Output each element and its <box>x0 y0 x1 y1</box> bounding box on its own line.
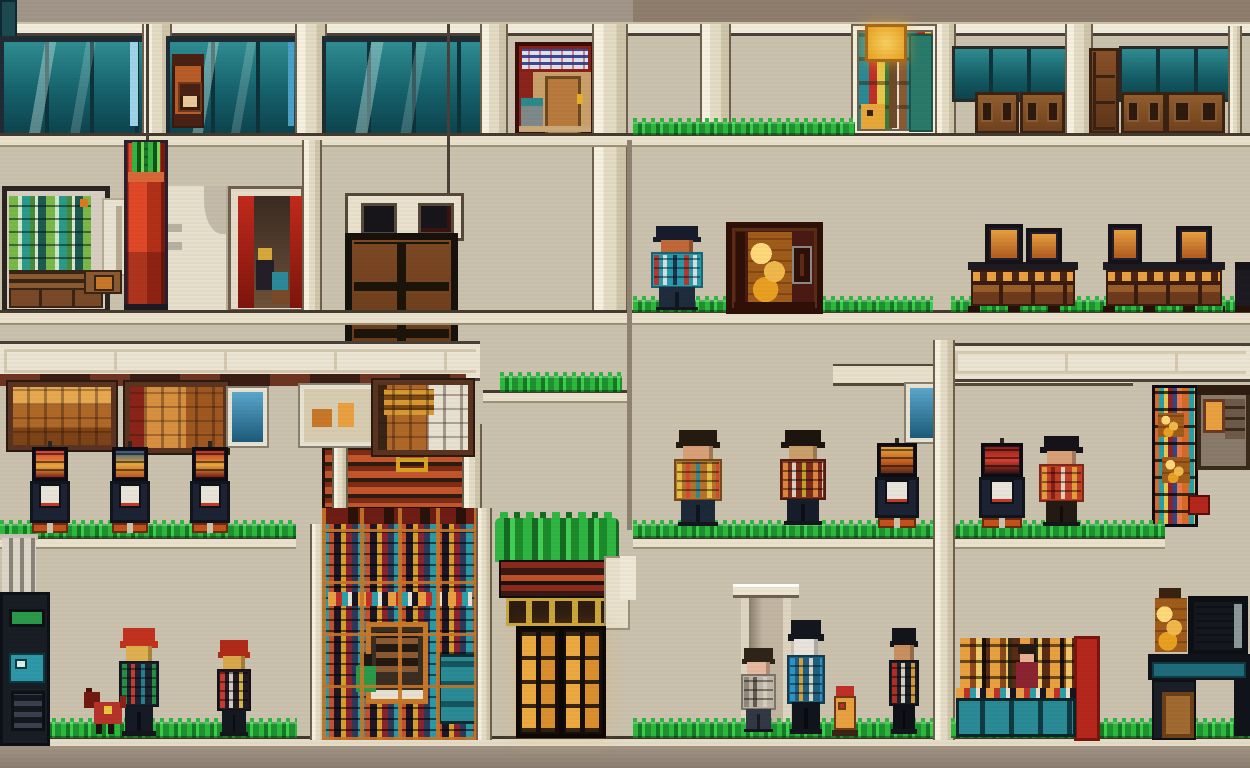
tower-column <box>2 538 36 594</box>
store-clerk-shirt <box>356 666 376 692</box>
closet-green-door <box>909 34 933 132</box>
storefront[interactable] <box>2 186 110 314</box>
kiosk-tile-row <box>956 688 1076 698</box>
desk-monitor <box>1188 596 1248 656</box>
robot-1-r-head <box>32 447 69 481</box>
kid2-body <box>834 696 856 730</box>
character-ground-c-p-face <box>794 639 818 656</box>
storefront-lamp-dot <box>80 199 88 207</box>
robot-1-r-feet <box>32 523 67 533</box>
kiosk-counter <box>956 698 1076 737</box>
character-floor3-c-p-torso <box>1039 464 1084 503</box>
closet-critter <box>861 104 885 129</box>
robot-lamp-body <box>1155 598 1187 652</box>
bottle-cap <box>132 142 160 172</box>
character-ground-b-p-face <box>223 656 245 671</box>
character-ground-d-p-legs <box>893 705 915 733</box>
sideboard-doors <box>971 283 1075 306</box>
sign-room-floor <box>519 126 591 132</box>
character-floor3-b-p-face <box>789 446 818 461</box>
robot-5[interactable] <box>979 438 1025 528</box>
character-ground-d[interactable] <box>888 628 920 736</box>
glass-accent-strip <box>130 42 138 126</box>
computer-station[interactable] <box>1148 588 1250 738</box>
alcove <box>168 186 230 312</box>
doorway-pediment <box>733 584 799 598</box>
sideboard-legs <box>1103 306 1225 312</box>
pillar-top-3 <box>480 24 508 138</box>
picture-frame-blue <box>228 388 267 446</box>
screen-glint <box>15 659 27 669</box>
red-bottle[interactable] <box>124 140 168 312</box>
store-tile-row <box>328 592 472 606</box>
portico-hedge <box>495 518 619 562</box>
character-floor3-c-p-hat <box>1044 436 1080 451</box>
store-teal-crates <box>438 654 480 724</box>
shop-pilaster-right <box>476 508 492 740</box>
desk-front-teal <box>1152 662 1246 678</box>
seated-person-hair <box>258 248 272 260</box>
window-band-3 <box>322 36 488 138</box>
desk-leg <box>1234 680 1250 736</box>
window-shelves <box>376 632 418 672</box>
floor-2-line <box>0 310 1250 325</box>
cabinet-lintel <box>1197 385 1250 395</box>
tower-body <box>0 592 50 746</box>
corner-window <box>0 0 17 40</box>
store-window <box>366 622 428 704</box>
storefront-screen <box>9 196 91 270</box>
alcove-steps <box>168 214 182 250</box>
tower-screen <box>9 653 45 683</box>
wall-cabinet-right <box>1197 385 1250 470</box>
case-white-box <box>792 246 812 284</box>
picture-frame-5 <box>373 380 473 455</box>
wood-counter <box>84 270 122 294</box>
bottle-band <box>128 172 164 182</box>
tv-curio-2 <box>1026 228 1062 264</box>
trophy-case <box>726 222 823 314</box>
door-wire <box>447 24 450 196</box>
character-floor3-c-p-face <box>1047 451 1075 465</box>
character-floor2[interactable] <box>650 226 704 312</box>
cabinet-amber-window <box>1203 399 1225 433</box>
robot-5-r-head <box>981 443 1023 476</box>
character-floor3-b-p-legs <box>787 499 820 524</box>
sideboard-doors <box>1106 283 1222 306</box>
sideboard-slots <box>971 270 1075 283</box>
robot-3-r-feet <box>192 523 227 533</box>
character-ground-b[interactable] <box>216 640 252 738</box>
portico-cornice <box>499 560 618 598</box>
character-floor3-a[interactable] <box>673 430 723 528</box>
ground-strip <box>0 746 1250 768</box>
character-floor3-a-p-torso <box>674 459 722 500</box>
kid2-pixel <box>838 702 846 710</box>
cabinet-shelf-rows <box>1225 399 1245 439</box>
sky-strip-left <box>0 0 633 24</box>
sideboard-3-partial <box>1235 262 1250 312</box>
character-floor3-b[interactable] <box>779 430 827 527</box>
teal-box-top <box>521 98 543 106</box>
sign-room[interactable] <box>515 42 595 136</box>
tall-cabinet <box>1089 48 1119 134</box>
character-floor2-p-hat <box>656 226 697 240</box>
curtain-left <box>238 196 254 308</box>
character-floor3-c-p-legs <box>1046 501 1078 525</box>
case-gold-pillar-left <box>736 232 745 304</box>
character-ground-c-p-torso <box>787 655 825 704</box>
store-lintel <box>322 508 478 524</box>
robot-2-r-body <box>110 481 150 523</box>
transom-window-left <box>361 203 397 235</box>
desk-pedestal <box>1152 680 1196 740</box>
kid-character-1-p-face <box>747 662 769 675</box>
closet-room <box>853 26 937 135</box>
character-ground-a-p-face <box>126 646 151 663</box>
tower-vent-slots <box>11 691 45 731</box>
character-floor2-p-legs <box>659 287 696 309</box>
pixel-building-scene <box>0 0 1250 768</box>
robot-3-r-body <box>190 481 230 523</box>
red-dog[interactable] <box>84 688 126 736</box>
character-ground-c-p-hat <box>791 620 821 639</box>
character-ground-a-p-hat <box>123 628 155 646</box>
server-tower[interactable] <box>0 538 44 740</box>
character-ground-a-p-legs <box>125 706 154 735</box>
robot-2-r-feet <box>112 523 147 533</box>
robot-4[interactable] <box>875 438 919 528</box>
robot-3[interactable] <box>190 441 230 533</box>
window-band-2 <box>166 36 306 138</box>
character-ground-c-p-legs <box>792 702 819 732</box>
robot-lamp-cap <box>1159 588 1181 598</box>
dog-legs <box>96 724 120 734</box>
character-floor3-c[interactable] <box>1038 436 1085 528</box>
door-sign <box>519 46 591 72</box>
tv-curio-4 <box>1176 226 1212 264</box>
shelf-box-1 <box>312 409 332 427</box>
dresser-3 <box>1121 92 1166 134</box>
portico-sidewall-2 <box>620 556 636 600</box>
case-gold-contents <box>748 232 792 304</box>
general-store[interactable] <box>322 508 478 740</box>
robot-4-r-head <box>877 443 918 476</box>
picture-frame-4 <box>300 385 375 446</box>
sideboard-legs <box>968 306 1078 312</box>
shelf-box-2 <box>338 403 354 427</box>
pillar-floor2 <box>302 140 322 316</box>
critter-eye <box>867 110 873 116</box>
sideboard-2 <box>1103 262 1225 312</box>
tv-figure <box>1188 238 1198 252</box>
vendor-hair <box>1018 644 1036 654</box>
cabinet-door-line <box>116 206 122 270</box>
vend-flowers-mid <box>1162 457 1190 483</box>
sign-room-interior <box>519 72 591 130</box>
window-kiosk[interactable] <box>172 54 204 128</box>
character-floor2-p-torso <box>651 252 703 288</box>
character-floor2-p-face <box>661 240 693 253</box>
character-floor3-a-p-legs <box>681 500 715 525</box>
tv-figure <box>1038 240 1048 252</box>
sideboard-slots <box>1106 270 1222 283</box>
teal-desk-screen <box>272 272 288 290</box>
tower-green-label <box>9 609 45 627</box>
vendor-face <box>1020 654 1034 662</box>
dresser-2 <box>1020 92 1065 134</box>
robot-1-r-body <box>30 481 70 523</box>
monitor-side-panel <box>1234 604 1242 648</box>
grass-ground-a <box>25 722 297 738</box>
robot-5-r-body <box>979 477 1025 518</box>
character-ground-d-p-torso <box>889 660 920 705</box>
robot-4-r-feet <box>878 518 917 528</box>
character-ground-b-p-hat <box>220 640 247 656</box>
orange-box <box>94 275 114 291</box>
wall-edge-line <box>627 140 632 530</box>
robot-2-r-head <box>112 447 149 481</box>
big-pillar <box>933 340 955 740</box>
case-base <box>734 302 815 308</box>
window-band-1 <box>0 36 150 138</box>
tv-figure <box>999 238 1009 252</box>
portico-frieze <box>506 598 612 626</box>
pillar-top-4 <box>592 24 628 314</box>
kid-character-1-p-hat <box>744 648 772 662</box>
kiosk-window <box>178 82 202 112</box>
glowing-double-doors[interactable] <box>516 626 606 738</box>
character-ground-d-p-face <box>894 645 913 661</box>
kid2-cap <box>836 686 854 696</box>
tv-curio-3 <box>1108 224 1142 264</box>
vend-flowers-top <box>1158 413 1184 437</box>
street-kiosk[interactable] <box>956 636 1094 737</box>
character-ground-b-p-legs <box>222 710 246 735</box>
dresser-1 <box>975 92 1019 134</box>
pillar-top-8 <box>1228 26 1242 136</box>
desk-surface <box>1148 654 1250 680</box>
robot-4-r-body <box>875 477 919 518</box>
kiosk-red-panel <box>1074 636 1100 741</box>
character-floor3-a-p-hat <box>679 430 717 446</box>
cornice-band-right <box>951 343 1250 382</box>
tv-curio-1 <box>985 224 1023 264</box>
sky-strip-right <box>633 0 1250 24</box>
doorway-interior <box>254 196 290 308</box>
dog-pixel <box>104 706 112 714</box>
store-clerk-head <box>360 654 372 666</box>
robot-3-r-head <box>192 447 229 481</box>
character-floor3-b-p-hat <box>785 430 821 446</box>
vend-red-box <box>1188 495 1210 515</box>
character-floor3-b-p-torso <box>780 459 826 500</box>
robot-2[interactable] <box>110 441 150 533</box>
kid-character-1-p-torso <box>741 674 777 710</box>
monitor-screen <box>1196 604 1234 648</box>
robot-1[interactable] <box>30 441 70 533</box>
picture-frame-1 <box>8 382 116 450</box>
character-ground-c[interactable] <box>786 620 826 736</box>
character-ground-d-p-hat <box>892 628 916 645</box>
doorbell-light <box>577 94 583 104</box>
transom-window-right <box>418 203 454 235</box>
character-ground-b-p-torso <box>217 669 252 710</box>
sideboard-1 <box>968 262 1078 312</box>
grass-floor-1 <box>633 122 855 135</box>
kid-character-1[interactable] <box>740 648 777 734</box>
character-floor3-a-p-face <box>683 446 713 461</box>
kiosk-base <box>174 114 202 126</box>
awning-stripes <box>384 389 434 415</box>
kid-character-1-p-legs <box>746 709 771 731</box>
desk-front <box>272 290 290 304</box>
pedestal-drawer <box>1162 692 1194 738</box>
dog-tail <box>120 696 126 708</box>
kid-character-2[interactable] <box>830 686 860 736</box>
dresser-4 <box>1166 92 1225 134</box>
curtain-right <box>290 196 302 308</box>
floor-1-line <box>0 133 1250 147</box>
bottle-wire <box>146 24 149 142</box>
robot-5-r-feet <box>982 518 1023 528</box>
floating-grass-ledge <box>500 376 622 392</box>
kid2-base <box>832 730 858 736</box>
tv-figure <box>1118 236 1130 252</box>
ceiling-lamp <box>865 24 907 62</box>
glass-accent-strip-2 <box>288 42 294 126</box>
red-doorway[interactable] <box>228 186 304 312</box>
